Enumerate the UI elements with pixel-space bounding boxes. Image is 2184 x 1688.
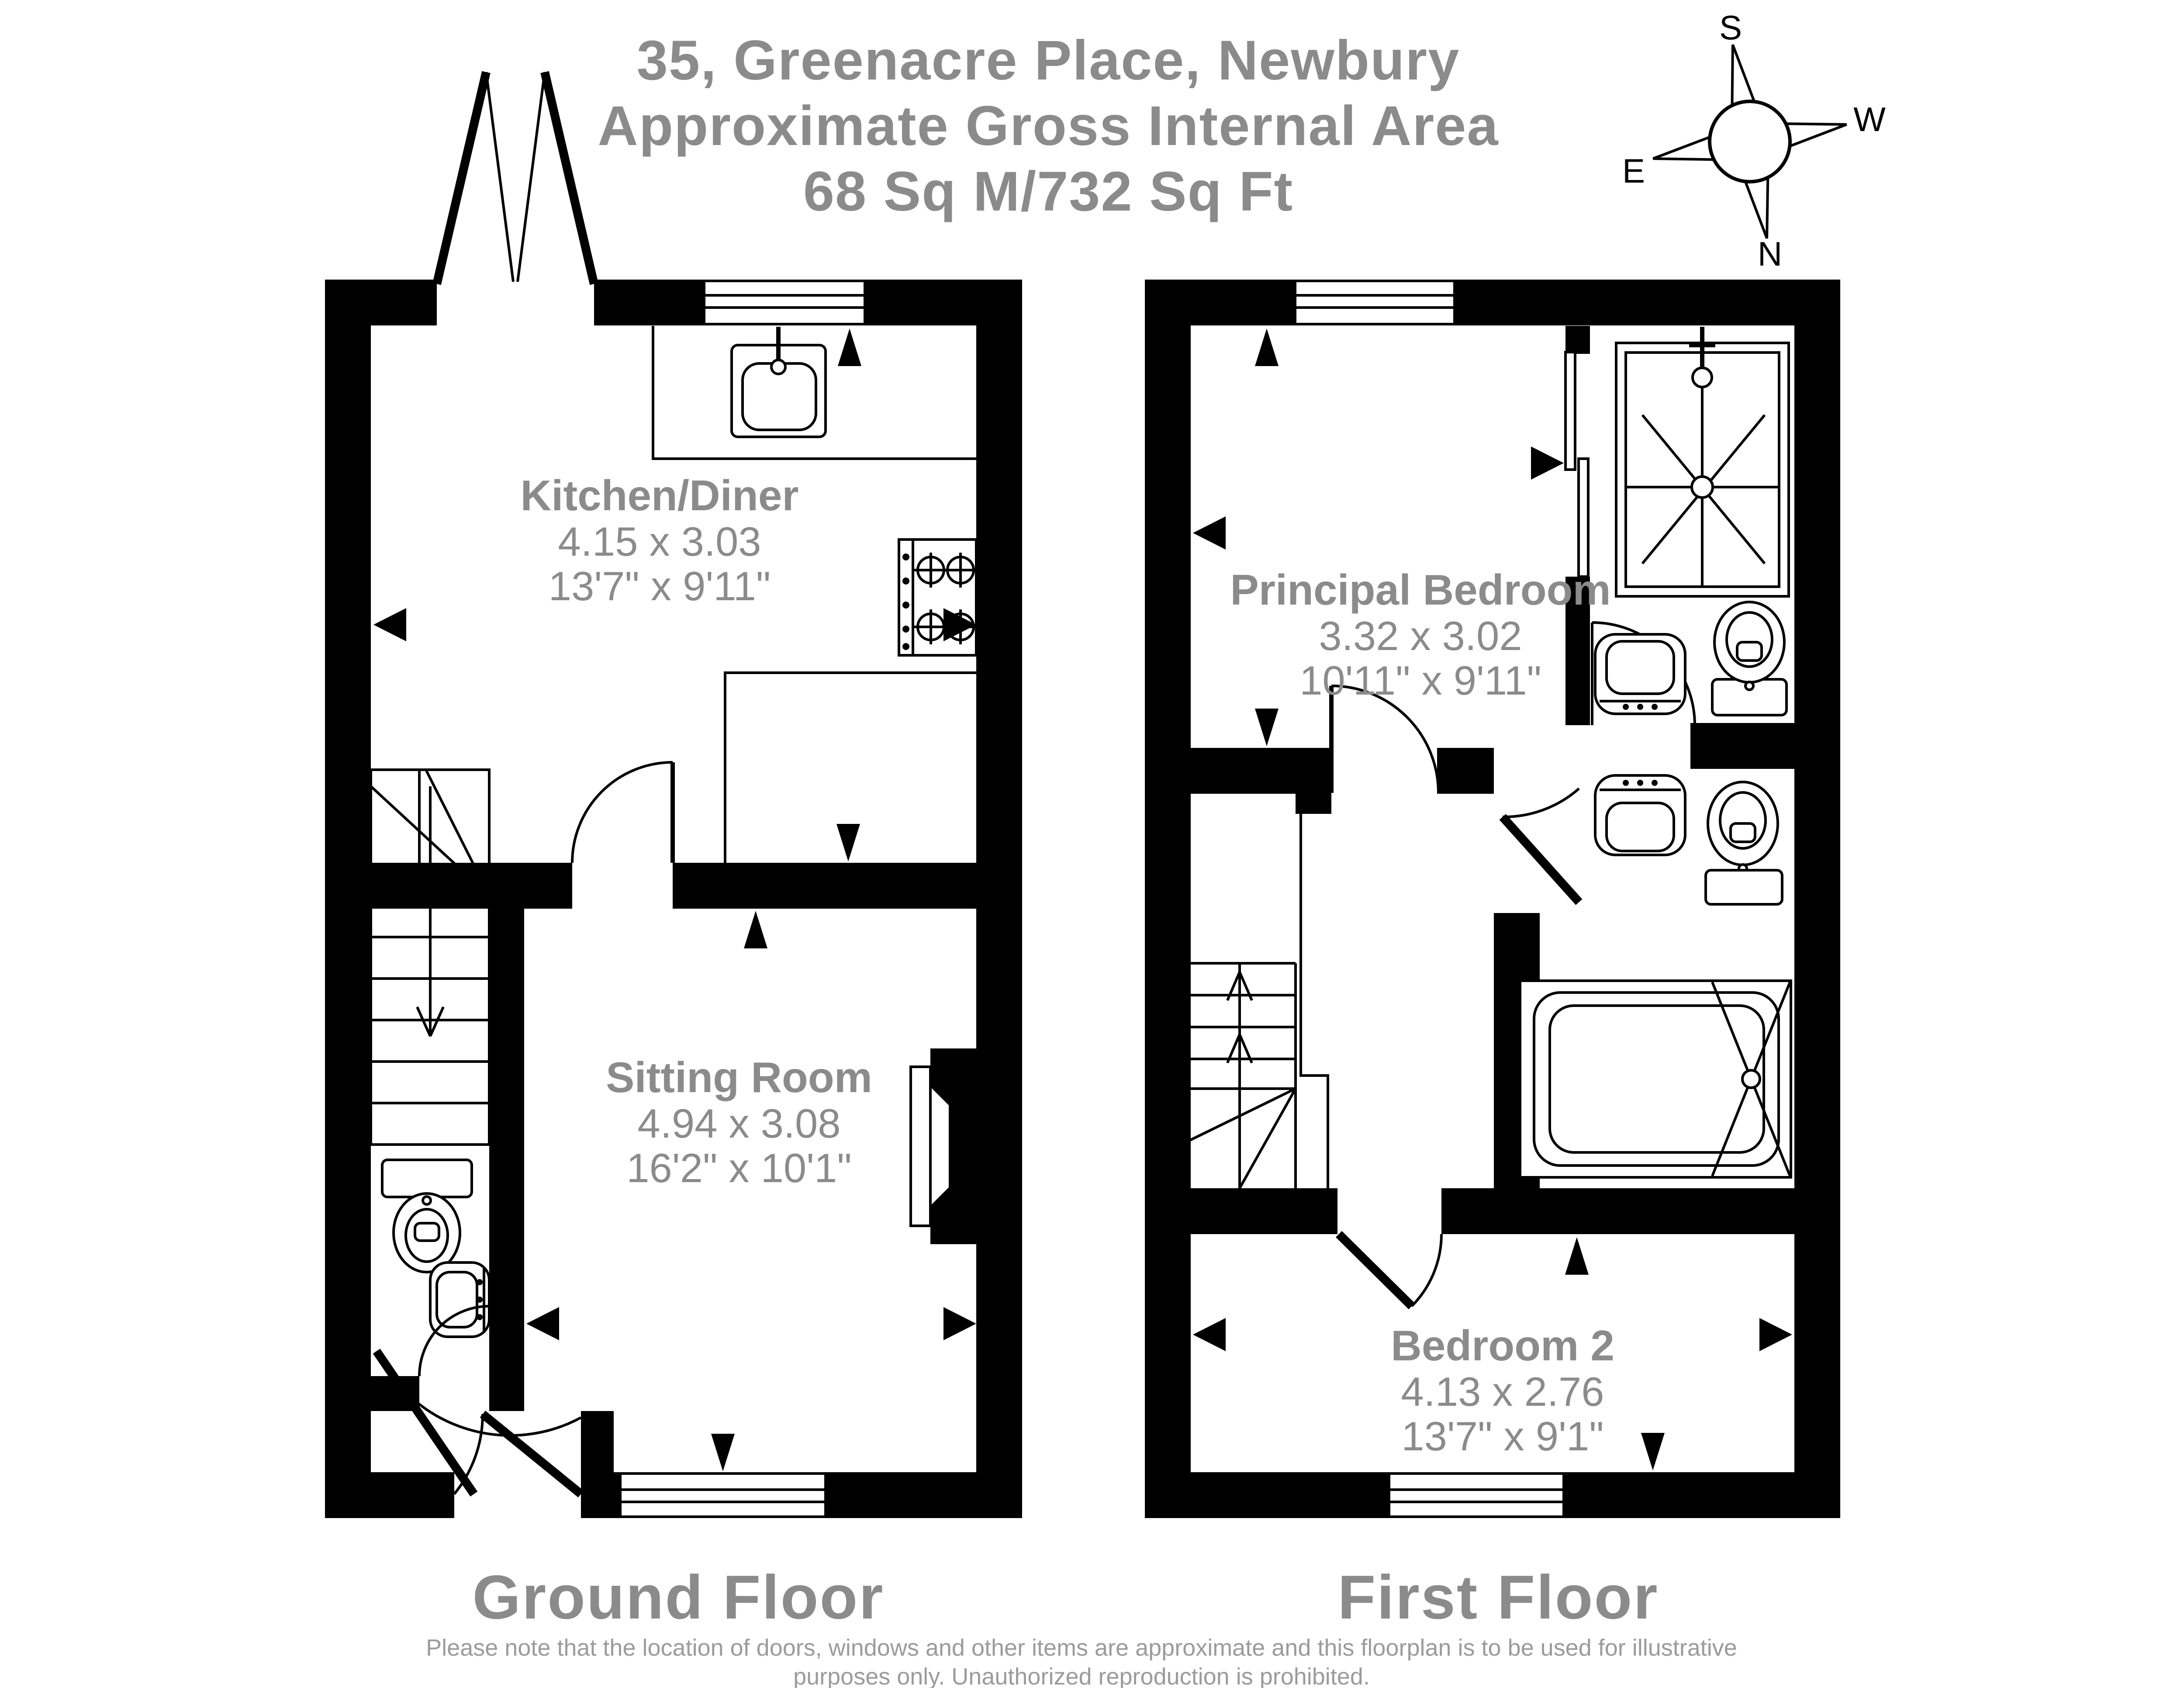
compass-label-n: N xyxy=(1758,235,1782,273)
ground-floor-plan: Kitchen/Diner 4.15 x 3.03 13'7" x 9'11" … xyxy=(325,72,1022,1632)
compass-label-w: W xyxy=(1853,100,1886,138)
ensuite-basin-icon xyxy=(1595,634,1685,714)
compass-label-s: S xyxy=(1719,8,1742,47)
arrow-left-icon xyxy=(1193,516,1226,550)
arrow-up-icon xyxy=(1565,1237,1589,1275)
room-imperial: 16'2" x 10'1" xyxy=(626,1145,852,1191)
floorplan-canvas: 35, Greenacre Place, Newbury Approximate… xyxy=(0,0,2184,1688)
room-name: Kitchen/Diner xyxy=(520,471,798,519)
arrow-down-icon xyxy=(836,824,860,861)
arrow-up-icon xyxy=(838,329,861,366)
floorplan-page: 35, Greenacre Place, Newbury Approximate… xyxy=(0,0,2184,1688)
title-area-label: Approximate Gross Internal Area xyxy=(598,95,1499,157)
room-name: Principal Bedroom xyxy=(1230,566,1610,614)
title-address: 35, Greenacre Place, Newbury xyxy=(637,29,1460,92)
compass-point-east xyxy=(1651,137,1714,170)
arrow-up-icon xyxy=(744,911,767,948)
wardrobe-sliding-doors xyxy=(1565,352,1588,577)
kitchen-door xyxy=(572,762,673,863)
fireplace xyxy=(911,1048,976,1244)
porch-double-door xyxy=(437,72,594,284)
arrow-left-icon xyxy=(526,1307,559,1340)
principal-bedroom-label: Principal Bedroom 3.32 x 3.02 10'11" x 9… xyxy=(1230,566,1610,703)
compass-point-south xyxy=(1721,43,1754,107)
room-metric: 3.32 x 3.02 xyxy=(1319,613,1522,659)
compass-label-e: E xyxy=(1622,152,1645,190)
room-metric: 4.94 x 3.08 xyxy=(637,1100,840,1146)
title-block: 35, Greenacre Place, Newbury Approximate… xyxy=(598,29,1499,223)
compass-points xyxy=(1636,28,1863,255)
ground-floor-stairs xyxy=(371,770,489,1145)
disclaimer: Please note that the location of doors, … xyxy=(426,1635,1737,1688)
bedroom2-door xyxy=(1339,1234,1441,1306)
arrow-right-icon xyxy=(943,1307,976,1340)
bathroom-toilet-icon xyxy=(1706,782,1782,904)
bathroom-basin-icon xyxy=(1595,775,1685,855)
arrow-left-icon xyxy=(373,608,406,641)
principal-bedroom-window xyxy=(1295,281,1455,324)
arrow-down-icon xyxy=(711,1434,735,1471)
stairs-up-arrow xyxy=(1227,963,1252,1188)
arrow-down-icon xyxy=(1641,1433,1665,1470)
bath-icon xyxy=(1520,981,1791,1177)
first-floor-stairs xyxy=(1184,963,1296,1188)
kitchen-diner-label: Kitchen/Diner 4.15 x 3.03 13'7" x 9'11" xyxy=(520,471,798,609)
compass-point-west xyxy=(1786,113,1849,146)
first-floor-label: First Floor xyxy=(1337,1563,1659,1632)
room-name: Sitting Room xyxy=(606,1053,872,1101)
compass-point-north xyxy=(1745,177,1778,240)
stair-void-outline xyxy=(1301,794,1328,1188)
room-imperial: 13'7" x 9'11" xyxy=(549,563,771,609)
ground-floor-label: Ground Floor xyxy=(472,1563,884,1632)
bedroom2-label: Bedroom 2 4.13 x 2.76 13'7" x 9'1" xyxy=(1391,1321,1614,1459)
kitchen-window xyxy=(704,281,865,324)
room-metric: 4.15 x 3.03 xyxy=(558,519,761,564)
kitchen-sink-icon xyxy=(732,327,826,437)
arrow-down-icon xyxy=(1255,709,1279,746)
arrow-right-icon xyxy=(1531,446,1564,480)
title-area-value: 68 Sq M/732 Sq Ft xyxy=(803,160,1293,223)
ensuite-toilet-icon xyxy=(1712,602,1787,715)
room-metric: 4.13 x 2.76 xyxy=(1401,1369,1604,1415)
first-floor-plan: Principal Bedroom 3.32 x 3.02 10'11" x 9… xyxy=(1145,280,1840,1632)
arrow-right-icon xyxy=(1759,1318,1792,1351)
compass-rose: S W E N xyxy=(1622,8,1886,273)
hob-icon xyxy=(899,540,976,655)
bedroom2-window xyxy=(1389,1474,1564,1517)
room-imperial: 10'11" x 9'11" xyxy=(1299,657,1541,703)
sitting-room-label: Sitting Room 4.94 x 3.08 16'2" x 10'1" xyxy=(606,1053,872,1191)
stairs-down-arrow xyxy=(417,786,443,1036)
arrow-left-icon xyxy=(1193,1318,1226,1351)
disclaimer-line2: purposes only. Unauthorized reproduction… xyxy=(793,1664,1370,1688)
bathroom-door xyxy=(1503,789,1579,902)
arrow-up-icon xyxy=(1255,329,1279,366)
compass-circle xyxy=(1703,95,1796,188)
disclaimer-line1: Please note that the location of doors, … xyxy=(426,1635,1737,1661)
sitting-room-window xyxy=(620,1474,826,1517)
room-imperial: 13'7" x 9'1" xyxy=(1401,1413,1603,1459)
shower-icon xyxy=(1616,327,1789,596)
room-name: Bedroom 2 xyxy=(1391,1321,1614,1370)
wc-toilet-icon xyxy=(382,1160,472,1272)
